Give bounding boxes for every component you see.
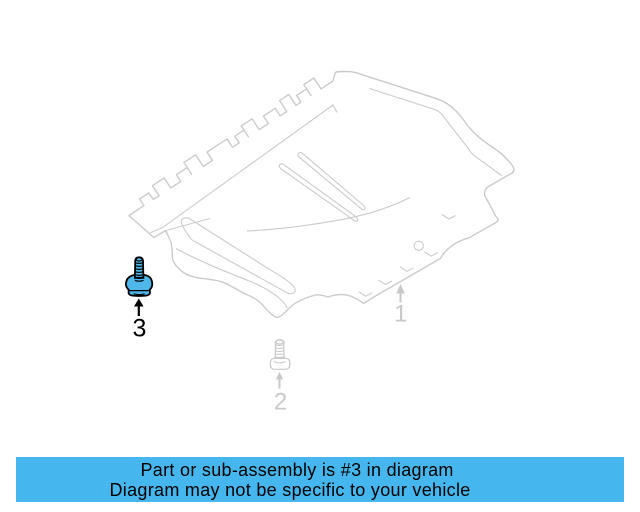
- svg-text:2: 2: [274, 389, 287, 416]
- svg-text:1: 1: [394, 301, 407, 328]
- svg-text:3: 3: [133, 315, 147, 343]
